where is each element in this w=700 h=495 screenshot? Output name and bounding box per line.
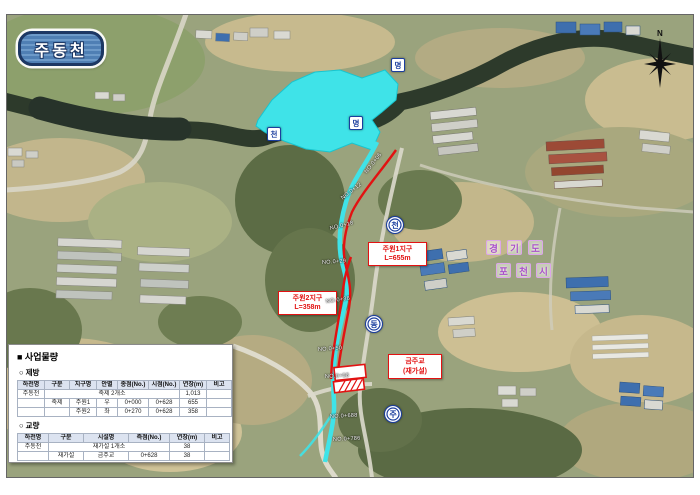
bridge-name: 금주교 bbox=[405, 357, 424, 366]
station-label: NO.0+50 bbox=[318, 345, 343, 353]
bridge-note: (재가설) bbox=[403, 367, 427, 376]
table-cell: 0+000 bbox=[118, 399, 149, 408]
region-city-char: 천 bbox=[516, 263, 531, 278]
table-header: 하천명 bbox=[18, 381, 45, 390]
table-header: 지구명 bbox=[70, 381, 97, 390]
region-province-char: 경 bbox=[486, 240, 501, 255]
bridge-table: 하천명구분시설명측점(No.)연장(m)비고주동천재가설 1개소38재가설금주교… bbox=[17, 433, 230, 461]
table-cell: 금주교 bbox=[84, 452, 129, 461]
levee-section-label: ○ 제방 bbox=[19, 367, 224, 378]
stream-name-badge: 명 bbox=[391, 58, 405, 72]
table-header: 구분 bbox=[45, 381, 70, 390]
table-row: 주원2좌0+2700+628358 bbox=[18, 408, 232, 417]
table-header: 하천명 bbox=[18, 434, 49, 443]
station-label: NO.0+06 bbox=[364, 152, 384, 175]
compass-rose-icon: N bbox=[638, 26, 682, 92]
table-cell bbox=[45, 408, 70, 417]
table-cell: 우 bbox=[97, 399, 118, 408]
stream-name-badge: 명 bbox=[349, 116, 363, 130]
table-row: 주동천재가설 1개소38 bbox=[18, 443, 230, 452]
station-label: NO.0+58 bbox=[325, 373, 350, 380]
table-cell: 좌 bbox=[97, 408, 118, 417]
table-header: 연장(m) bbox=[170, 434, 205, 443]
table-header: 비고 bbox=[207, 381, 232, 390]
station-label: NO.0+786 bbox=[333, 436, 361, 443]
stream-title-label: 주동천 bbox=[34, 37, 87, 61]
table-cell: 주동천 bbox=[18, 443, 49, 452]
table-header: 측점(No.) bbox=[129, 434, 170, 443]
table-row: 재가설금주교0+62838 bbox=[18, 452, 230, 461]
bridge-label-box: 금주교 (재가설) bbox=[388, 354, 442, 379]
district1-length: L=655m bbox=[384, 254, 410, 263]
table-cell: 0+628 bbox=[149, 408, 180, 417]
district1-label-box: 주원1지구 L=655m bbox=[368, 242, 427, 266]
table-header: 종점(No.) bbox=[118, 381, 149, 390]
table-cell: 655 bbox=[180, 399, 207, 408]
table-cell bbox=[205, 452, 230, 461]
table-cell: 38 bbox=[170, 443, 205, 452]
station-label: NO.0+12 bbox=[340, 182, 363, 202]
bridge-section-label: ○ 교량 bbox=[19, 420, 224, 431]
annotation-layer: 주동천 N 주원1지구 L=655m 주원2지구 L=358m 금주교 (재가설… bbox=[0, 0, 700, 495]
table-cell: 358 bbox=[180, 408, 207, 417]
table-header: 안별 bbox=[97, 381, 118, 390]
levee-table: 하천명구분지구명안별종점(No.)시점(No.)연장(m)비고주동천축제 2개소… bbox=[17, 380, 232, 417]
stream-title-badge: 주동천 bbox=[18, 31, 104, 66]
table-cell: 1,013 bbox=[180, 390, 207, 399]
station-label: NO.0+688 bbox=[330, 413, 358, 420]
table-cell: 재가설 bbox=[49, 452, 84, 461]
table-cell bbox=[18, 452, 49, 461]
district2-name: 주원2지구 bbox=[293, 294, 323, 303]
region-city-char: 시 bbox=[536, 263, 551, 278]
table-cell bbox=[207, 390, 232, 399]
table-cell: 0+628 bbox=[149, 399, 180, 408]
table-cell: 38 bbox=[170, 452, 205, 461]
table-cell bbox=[205, 443, 230, 452]
table-header: 시설명 bbox=[84, 434, 129, 443]
compass-north-text: N bbox=[657, 29, 663, 38]
stream-name-badge: 주 bbox=[384, 405, 402, 423]
table-cell: 축제 bbox=[45, 399, 70, 408]
stream-name-badge: 동 bbox=[365, 315, 383, 333]
station-label: NO.0+18 bbox=[329, 220, 354, 232]
table-cell: 재가설 1개소 bbox=[49, 443, 170, 452]
table-row: 주동천축제 2개소1,013 bbox=[18, 390, 232, 399]
panel-title: ■ 사업물량 bbox=[17, 350, 224, 363]
table-header: 비고 bbox=[205, 434, 230, 443]
plan-map-sheet: 주동천 N 주원1지구 L=655m 주원2지구 L=358m 금주교 (재가설… bbox=[0, 0, 700, 495]
table-header: 구분 bbox=[49, 434, 84, 443]
table-cell: 주동천 bbox=[18, 390, 45, 399]
stream-name-badge: 천 bbox=[386, 216, 404, 234]
table-cell: 0+628 bbox=[129, 452, 170, 461]
table-cell: 주원1 bbox=[70, 399, 97, 408]
table-cell bbox=[18, 408, 45, 417]
table-row: 축제주원1우0+0000+628655 bbox=[18, 399, 232, 408]
project-quantity-panel: ■ 사업물량 ○ 제방 하천명구분지구명안별종점(No.)시점(No.)연장(m… bbox=[8, 344, 233, 463]
region-province-char: 기 bbox=[507, 240, 522, 255]
region-province-char: 도 bbox=[528, 240, 543, 255]
table-header: 연장(m) bbox=[180, 381, 207, 390]
district2-length: L=358m bbox=[294, 303, 320, 312]
stream-name-badge: 천 bbox=[267, 127, 281, 141]
table-cell: 0+270 bbox=[118, 408, 149, 417]
table-cell bbox=[18, 399, 45, 408]
table-cell: 축제 2개소 bbox=[45, 390, 180, 399]
district1-name: 주원1지구 bbox=[383, 245, 413, 254]
table-cell bbox=[207, 399, 232, 408]
region-city-char: 포 bbox=[496, 263, 511, 278]
table-header: 시점(No.) bbox=[149, 381, 180, 390]
table-cell bbox=[207, 408, 232, 417]
table-cell: 주원2 bbox=[70, 408, 97, 417]
station-label: NO.0+29 bbox=[322, 258, 347, 266]
